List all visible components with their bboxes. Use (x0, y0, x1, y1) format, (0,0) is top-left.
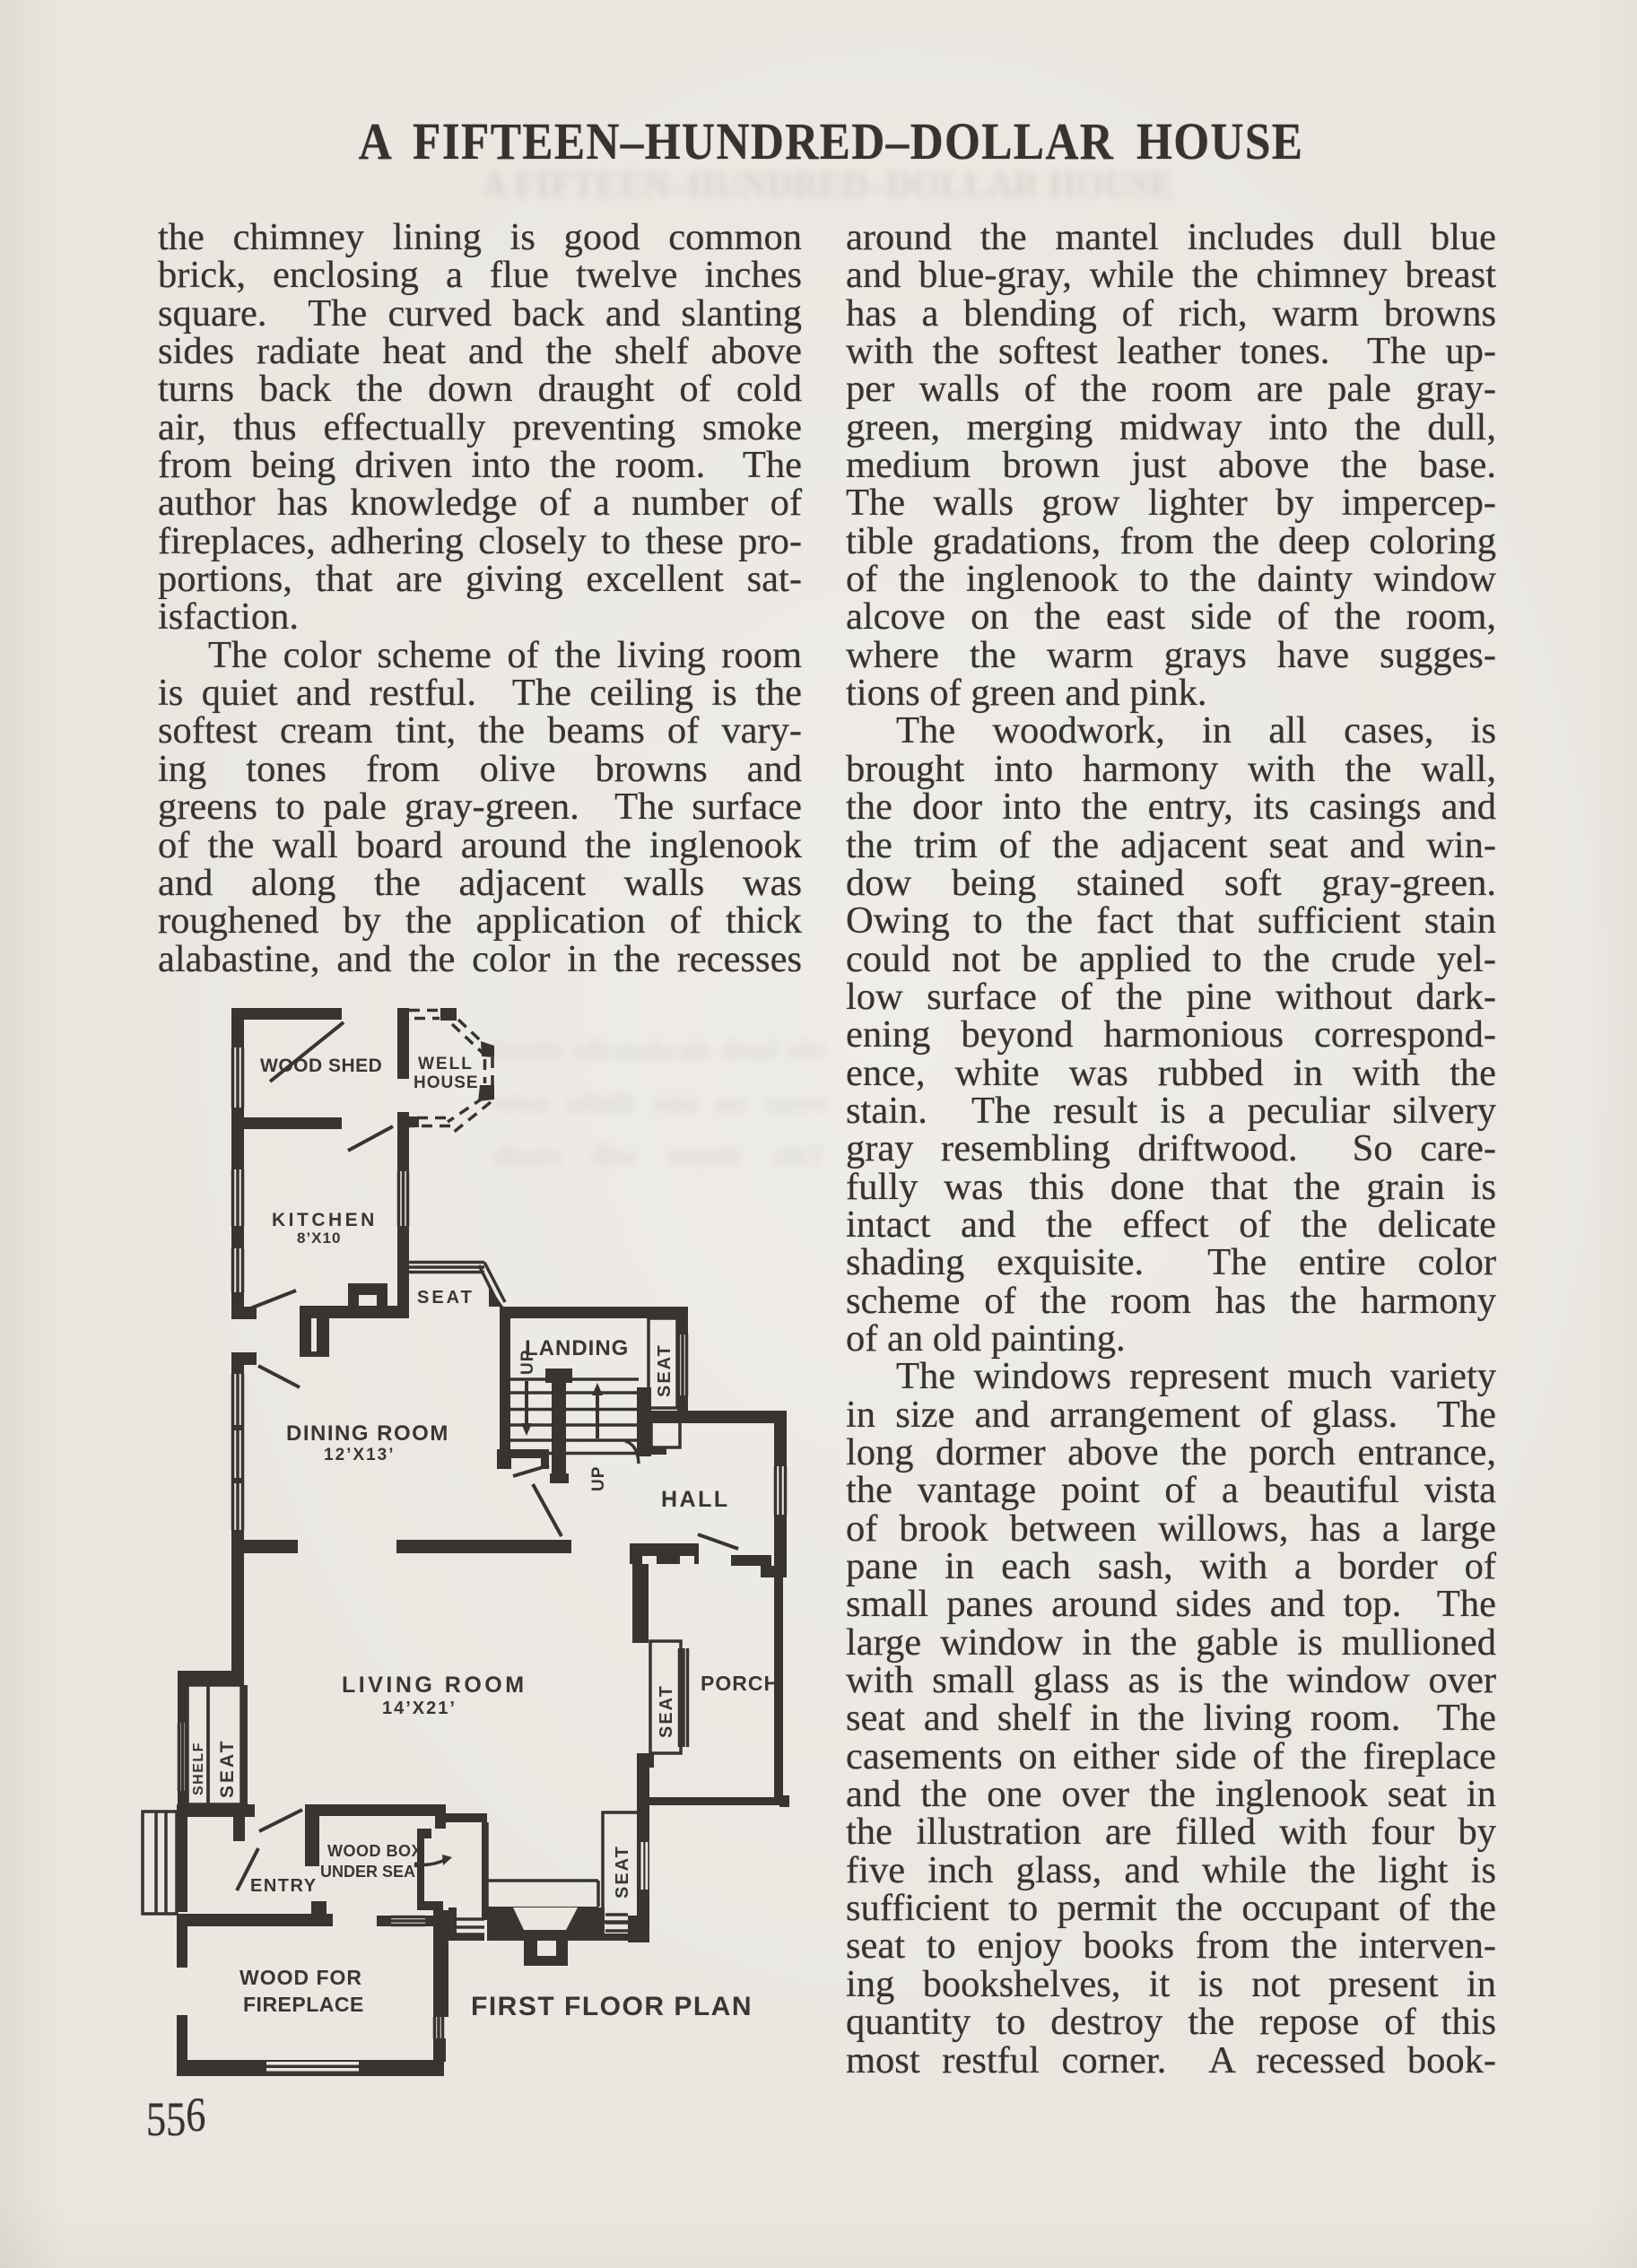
svg-text:HALL: HALL (661, 1487, 730, 1512)
svg-text:PORCH: PORCH (701, 1672, 779, 1695)
svg-text:14’X21’: 14’X21’ (382, 1699, 457, 1718)
svg-text:SEAT: SEAT (417, 1288, 475, 1308)
svg-text:WOOD FOR: WOOD FOR (239, 1966, 362, 1989)
svg-text:SEAT: SEAT (217, 1739, 238, 1798)
svg-text:12’X13’: 12’X13’ (324, 1446, 396, 1464)
svg-text:FIREPLACE: FIREPLACE (243, 1993, 364, 2016)
svg-text:WOOD BOX: WOOD BOX (327, 1842, 422, 1860)
svg-text:8’X10: 8’X10 (297, 1230, 341, 1247)
svg-text:SEAT: SEAT (613, 1845, 632, 1899)
svg-text:FIRST FLOOR PLAN: FIRST FLOOR PLAN (471, 1992, 753, 2021)
svg-text:WELL: WELL (418, 1055, 474, 1073)
svg-text:LANDING: LANDING (525, 1336, 629, 1360)
svg-text:LIVING ROOM: LIVING ROOM (342, 1673, 527, 1698)
svg-text:HOUSE: HOUSE (414, 1073, 479, 1092)
svg-text:DINING ROOM: DINING ROOM (286, 1421, 449, 1446)
svg-text:SEAT: SEAT (657, 1684, 676, 1738)
svg-text:WOOD SHED: WOOD SHED (260, 1056, 382, 1076)
svg-text:UP: UP (518, 1350, 537, 1375)
svg-text:SHELF: SHELF (191, 1742, 206, 1795)
svg-text:UNDER SEAT: UNDER SEAT (320, 1863, 424, 1881)
svg-text:ENTRY: ENTRY (250, 1876, 318, 1896)
svg-text:KITCHEN: KITCHEN (272, 1210, 378, 1230)
svg-text:UP: UP (589, 1466, 608, 1491)
svg-text:SEAT: SEAT (655, 1343, 675, 1397)
